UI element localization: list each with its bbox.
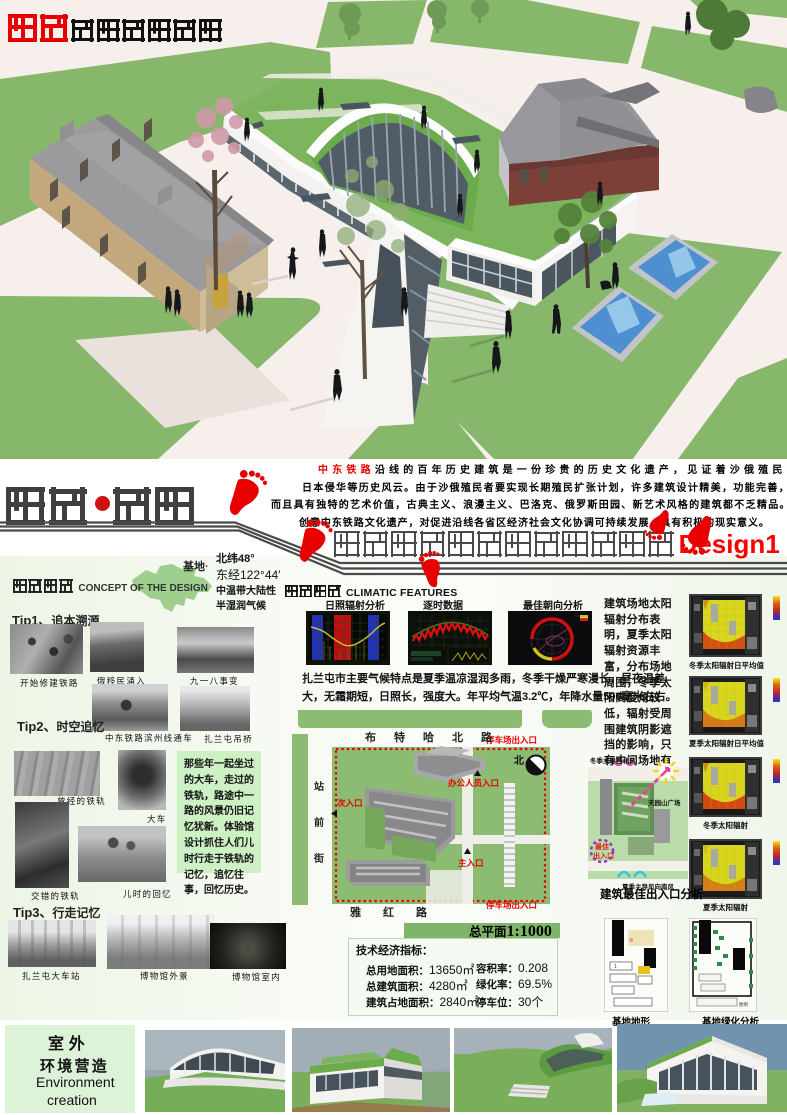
svg-text:雅红路: 雅红路 [350, 905, 449, 919]
svg-text:街: 街 [313, 852, 324, 865]
svg-text:前: 前 [314, 816, 324, 829]
svg-text:站: 站 [314, 780, 324, 793]
svg-text:布特哈北路: 布特哈北路 [365, 730, 510, 744]
svg-text:6: 6 [630, 938, 633, 944]
svg-text:最佳: 最佳 [595, 842, 609, 851]
svg-text:北: 北 [514, 754, 524, 767]
svg-text:天园山广场: 天园山广场 [648, 798, 681, 807]
svg-text:停车场出入口: 停车场出入口 [486, 900, 537, 910]
svg-text:1: 1 [614, 964, 617, 970]
svg-text:出入口: 出入口 [593, 851, 614, 860]
svg-text:主入口: 主入口 [458, 858, 484, 868]
svg-text:办公人员入口: 办公人员入口 [448, 778, 499, 788]
svg-text:次入口: 次入口 [337, 798, 363, 808]
svg-text:图例: 图例 [739, 1001, 748, 1008]
svg-text:冬季主导西北风: 冬季主导西北风 [590, 756, 636, 765]
